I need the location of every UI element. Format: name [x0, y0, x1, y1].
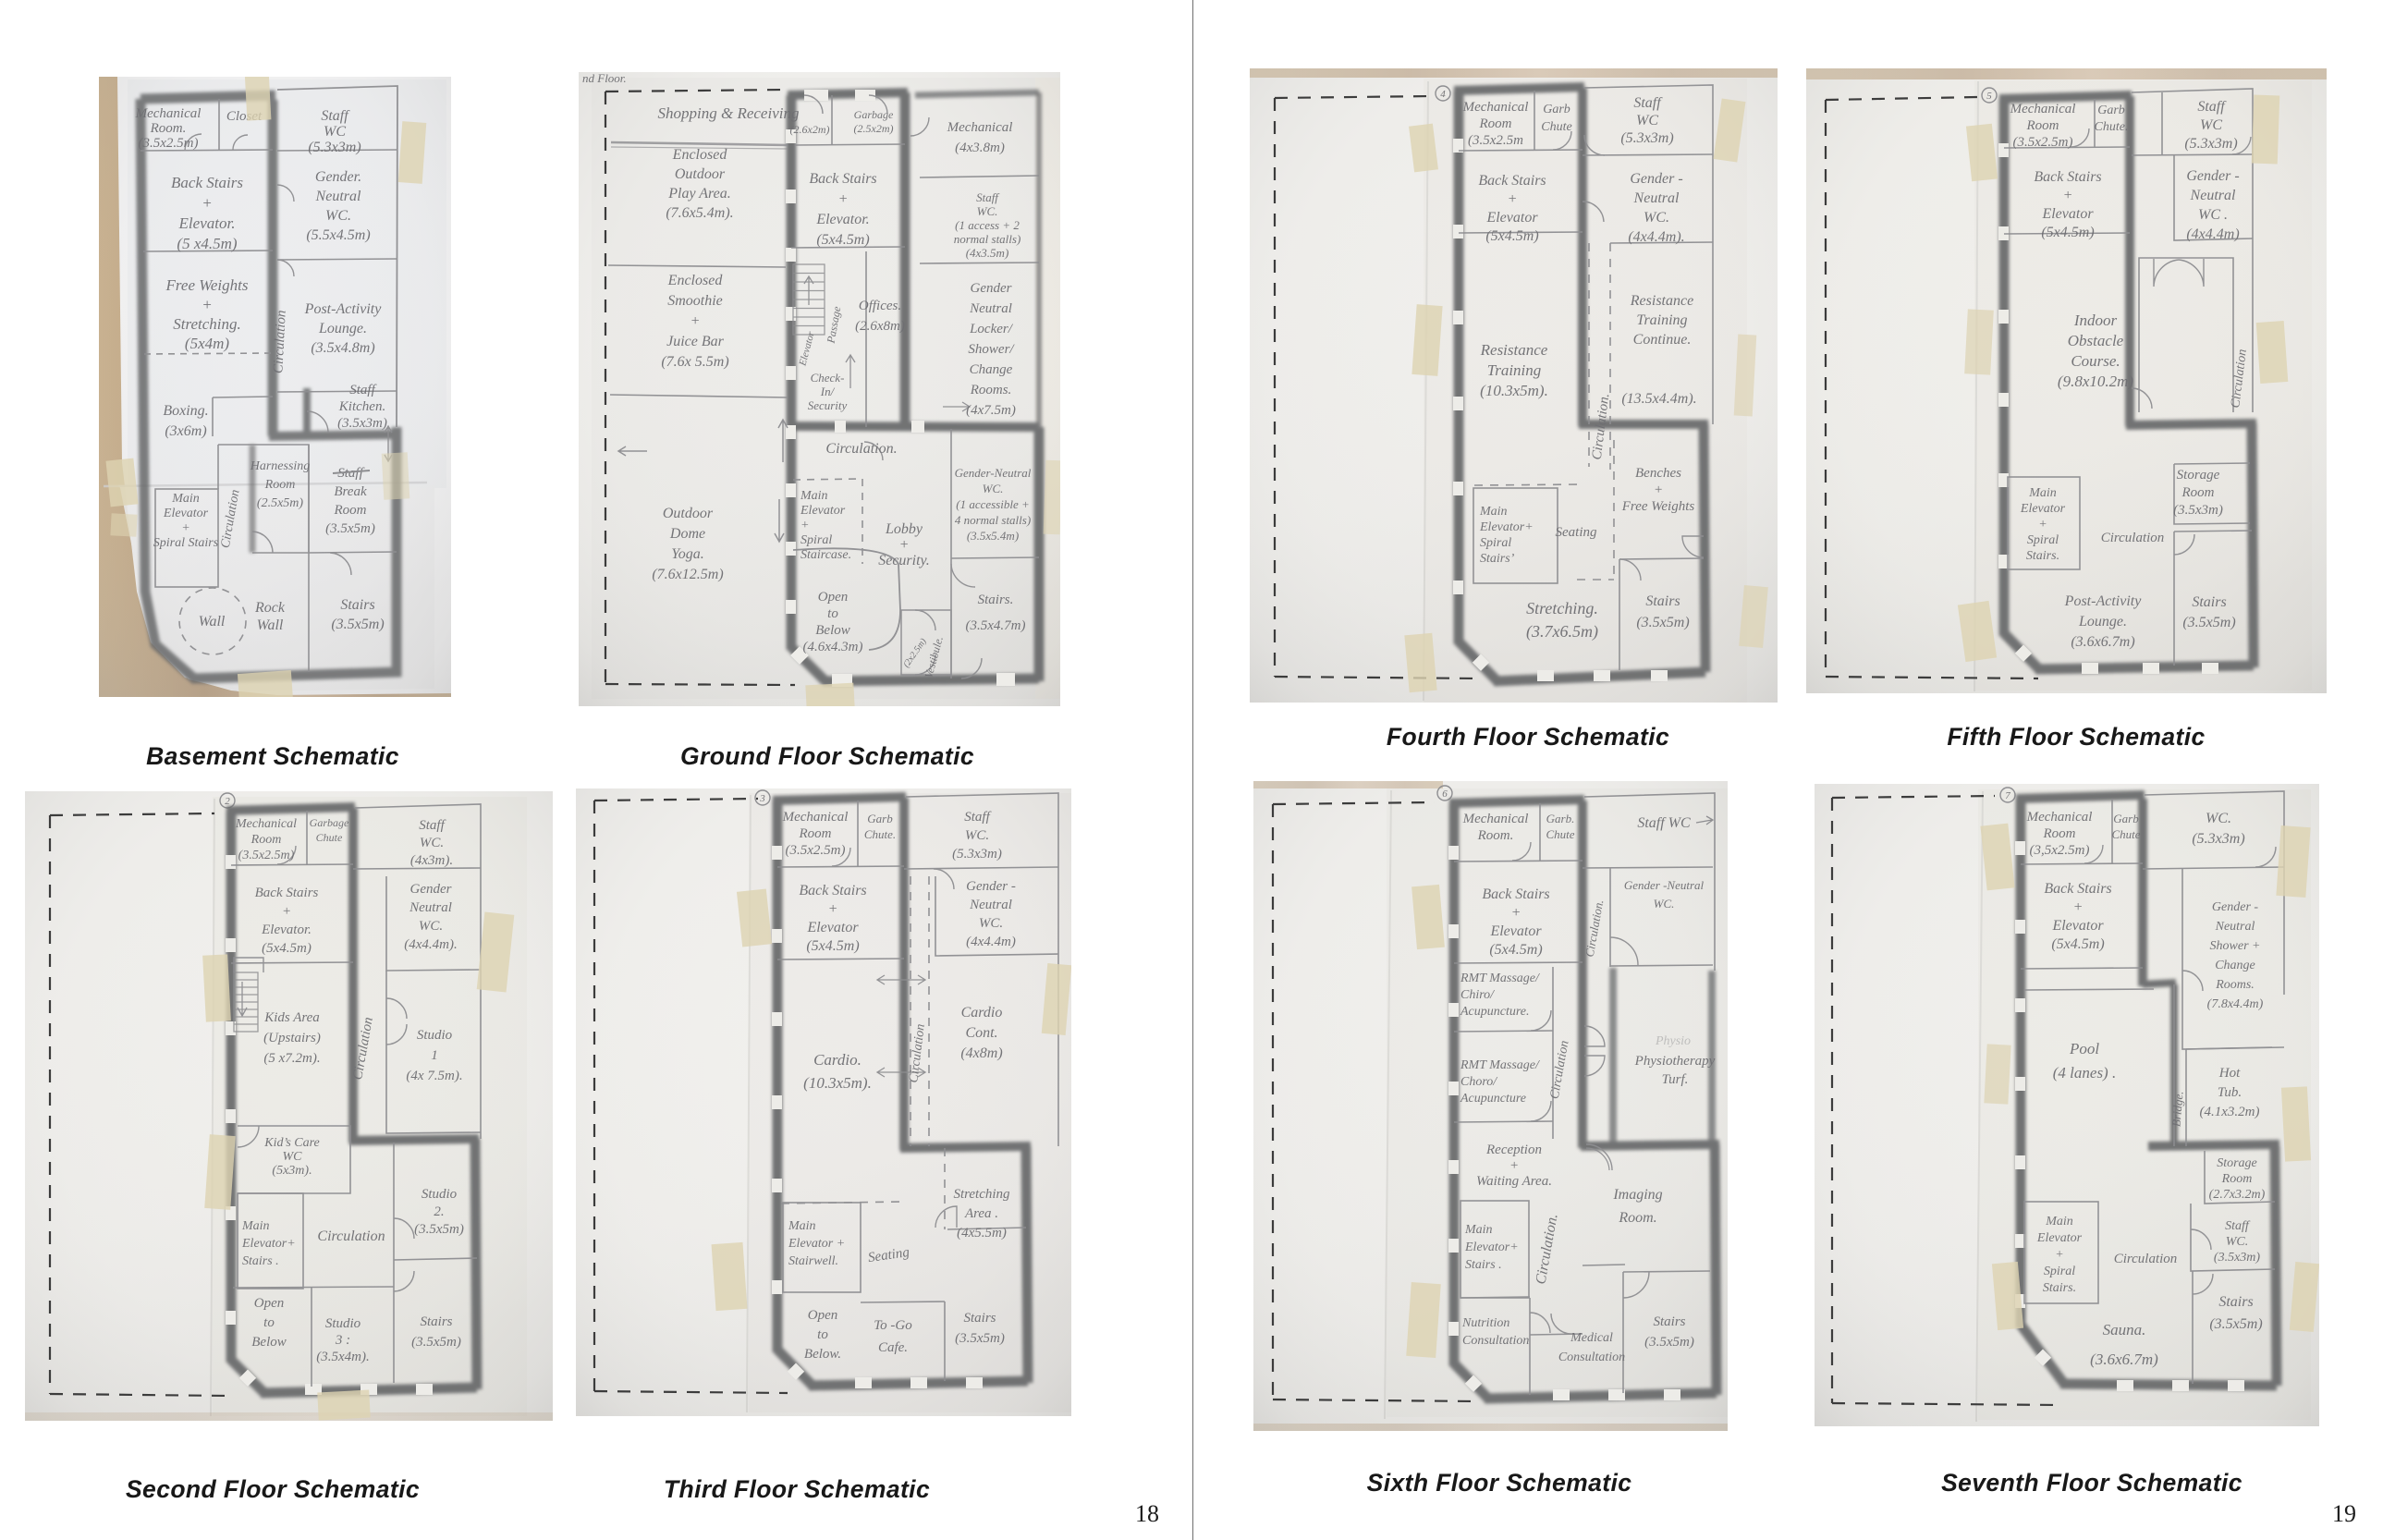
svg-text:(9.8x10.2m): (9.8x10.2m)	[2058, 373, 2133, 390]
svg-text:(5x4.5m): (5x4.5m)	[2051, 936, 2104, 952]
svg-text:Neutral: Neutral	[409, 900, 452, 915]
svg-text:Lounge.: Lounge.	[318, 321, 367, 336]
svg-text:Hot: Hot	[2218, 1066, 2241, 1081]
svg-text:Staff: Staff	[419, 818, 446, 833]
svg-text:Gender: Gender	[410, 882, 452, 897]
svg-text:5: 5	[1986, 91, 1992, 102]
svg-text:Elevator.: Elevator.	[261, 923, 312, 937]
svg-text:WC.: WC.	[420, 836, 444, 850]
svg-text:Course.: Course.	[2071, 352, 2120, 370]
svg-text:Gender -: Gender -	[966, 879, 1016, 894]
svg-text:Spiral Stairs: Spiral Stairs	[153, 536, 219, 550]
svg-text:Lobby: Lobby	[885, 521, 923, 537]
svg-text:Break: Break	[334, 484, 367, 499]
svg-text:(3.5x5m): (3.5x5m)	[414, 1222, 464, 1237]
svg-text:(3.5x5m): (3.5x5m)	[325, 521, 375, 536]
svg-text:WC: WC	[324, 124, 346, 140]
svg-text:(3.7x6.5m): (3.7x6.5m)	[1526, 622, 1598, 642]
svg-text:WC.: WC.	[2206, 811, 2231, 826]
svg-text:Staff: Staff	[976, 190, 1000, 204]
svg-text:(4x4.4m): (4x4.4m)	[966, 935, 1016, 949]
svg-text:(3x6m): (3x6m)	[165, 423, 206, 439]
svg-text:Stairs: Stairs	[2192, 594, 2226, 610]
svg-text:Locker/: Locker/	[969, 322, 1014, 336]
svg-text:Elevator+: Elevator+	[241, 1237, 296, 1251]
svg-text:(3.5x4.7m): (3.5x4.7m)	[966, 618, 1026, 633]
svg-text:Main: Main	[1464, 1223, 1493, 1237]
svg-text:(3.5x2.5m: (3.5x2.5m	[1468, 133, 1523, 148]
svg-text:Elevator.: Elevator.	[815, 212, 869, 227]
svg-text:Room: Room	[264, 478, 296, 492]
svg-text:Stairwell.: Stairwell.	[788, 1254, 838, 1268]
svg-text:Back Stairs: Back Stairs	[799, 883, 866, 898]
svg-text:Staff: Staff	[349, 383, 376, 397]
svg-text:(5x4m): (5x4m)	[185, 335, 229, 352]
svg-text:+: +	[2038, 518, 2047, 532]
svg-text:Cafe.: Cafe.	[878, 1340, 908, 1355]
svg-text:(5x4.5m): (5x4.5m)	[806, 938, 859, 954]
svg-text:(3.5x5m): (3.5x5m)	[411, 1335, 461, 1350]
svg-text:Elevator +: Elevator +	[788, 1237, 845, 1251]
svg-text:+: +	[1508, 191, 1518, 207]
svg-text:(7.6x 5.5m): (7.6x 5.5m)	[661, 354, 728, 370]
svg-text:Mechanical: Mechanical	[135, 106, 202, 121]
svg-text:Elevator: Elevator	[163, 507, 209, 520]
svg-text:Elevator: Elevator	[800, 504, 846, 518]
svg-text:Kid’s Care: Kid’s Care	[263, 1136, 320, 1150]
svg-text:To -Go: To -Go	[874, 1318, 912, 1333]
svg-text:Spiral: Spiral	[2027, 533, 2059, 547]
svg-text:(4x3m).: (4x3m).	[410, 853, 453, 868]
svg-text:Circulation.: Circulation.	[825, 441, 897, 457]
svg-text:3: 3	[759, 793, 765, 804]
svg-text:(5.3x3m): (5.3x3m)	[2192, 831, 2244, 847]
svg-text:6: 6	[1442, 788, 1448, 800]
svg-text:Kitchen.: Kitchen.	[338, 399, 385, 414]
svg-text:(3.5x5m): (3.5x5m)	[2209, 1316, 2262, 1332]
svg-text:(3,5x2.5m): (3,5x2.5m)	[2030, 843, 2090, 858]
svg-text:Staff: Staff	[964, 810, 991, 825]
svg-text:+: +	[2073, 899, 2084, 915]
svg-text:Consultation: Consultation	[1462, 1334, 1529, 1348]
svg-text:(2.5x2m): (2.5x2m)	[854, 122, 894, 135]
svg-text:(3.5x5m): (3.5x5m)	[1636, 615, 1689, 630]
svg-text:(4.6x4.3m): (4.6x4.3m)	[803, 640, 863, 654]
svg-text:Outdoor: Outdoor	[663, 506, 714, 521]
svg-text:(5.5x4.5m): (5.5x4.5m)	[306, 227, 370, 243]
svg-text:Dome: Dome	[669, 526, 705, 542]
svg-text:Circulation: Circulation	[2101, 531, 2165, 545]
svg-text:Room.: Room.	[1618, 1210, 1656, 1226]
svg-text:Continue.: Continue.	[1633, 332, 1692, 348]
svg-text:(3.5x2.5m): (3.5x2.5m)	[786, 843, 846, 858]
svg-text:Garbage: Garbage	[310, 816, 349, 829]
svg-text:Rooms.: Rooms.	[2215, 978, 2255, 992]
svg-text:Room.: Room.	[1477, 828, 1514, 843]
svg-text:Security.: Security.	[878, 553, 930, 568]
svg-text:+: +	[1654, 483, 1663, 497]
svg-text:Smoothie: Smoothie	[667, 293, 723, 309]
svg-text:Nutrition: Nutrition	[1461, 1316, 1509, 1330]
svg-text:Rock: Rock	[254, 600, 286, 616]
svg-text:Neutral: Neutral	[315, 189, 361, 204]
svg-text:Chute: Chute	[1546, 827, 1574, 841]
svg-text:(13.5x4.4m).: (13.5x4.4m).	[1621, 391, 1696, 407]
svg-text:Circulation: Circulation	[2114, 1252, 2178, 1266]
svg-text:Storage: Storage	[2217, 1156, 2257, 1170]
svg-text:Back Stairs: Back Stairs	[171, 174, 243, 191]
svg-text:Acupuncture.: Acupuncture.	[1460, 1005, 1530, 1019]
svg-text:Resistance: Resistance	[1480, 341, 1548, 359]
svg-text:(3.5x2.5m): (3.5x2.5m)	[238, 849, 295, 862]
svg-text:Resistance: Resistance	[1630, 293, 1693, 309]
svg-text:Wall: Wall	[199, 614, 226, 629]
svg-text:Staff WC: Staff WC	[1637, 815, 1691, 831]
svg-text:Stairs: Stairs	[420, 1314, 452, 1329]
svg-text:Enclosed: Enclosed	[672, 147, 728, 163]
svg-text:(7.8x4.4m): (7.8x4.4m)	[2207, 997, 2264, 1011]
svg-text:Training: Training	[1636, 312, 1687, 328]
svg-text:(1 accessible +: (1 accessible +	[956, 497, 1030, 511]
svg-text:(1 access + 2: (1 access + 2	[955, 218, 1020, 232]
svg-text:Check-: Check-	[811, 371, 845, 385]
svg-text:Stretching.: Stretching.	[173, 315, 241, 333]
svg-text:Play Area.: Play Area.	[667, 186, 731, 202]
svg-text:(4.1x3.2m): (4.1x3.2m)	[2200, 1105, 2260, 1119]
svg-text:Chute.: Chute.	[2095, 120, 2129, 134]
svg-text:Stairs’: Stairs’	[1480, 552, 1515, 566]
svg-text:Chiro/: Chiro/	[1460, 988, 1495, 1002]
svg-text:Mechanical: Mechanical	[2026, 810, 2093, 825]
svg-text:(2.5x5m): (2.5x5m)	[257, 496, 303, 510]
svg-text:Security: Security	[808, 398, 848, 412]
svg-text:(3.5x5.4m): (3.5x5.4m)	[967, 529, 1019, 543]
svg-text:Garb: Garb	[867, 812, 893, 825]
svg-text:Main: Main	[788, 1219, 816, 1233]
svg-text:Offices.: Offices.	[859, 299, 901, 313]
svg-text:(3.5x4m).: (3.5x4m).	[316, 1350, 369, 1364]
svg-text:Back Stairs: Back Stairs	[1478, 173, 1546, 189]
svg-text:(5x4.5m): (5x4.5m)	[1489, 942, 1542, 958]
svg-text:Shower +: Shower +	[2210, 939, 2261, 953]
svg-text:+: +	[202, 296, 212, 313]
svg-text:(3.5x3m): (3.5x3m)	[2214, 1251, 2260, 1265]
svg-text:Neutral: Neutral	[969, 301, 1012, 316]
svg-text:Shower/: Shower/	[968, 342, 1015, 357]
svg-text:(3.5x3m): (3.5x3m)	[2173, 503, 2223, 518]
svg-text:Stairs: Stairs	[1645, 593, 1680, 609]
svg-text:Studio: Studio	[422, 1187, 458, 1202]
svg-text:Studio: Studio	[417, 1028, 453, 1043]
svg-text:Room: Room	[2221, 1172, 2253, 1186]
svg-text:+: +	[181, 521, 189, 535]
svg-text:Stairs: Stairs	[340, 597, 374, 613]
svg-text:Back Stairs: Back Stairs	[1482, 886, 1549, 902]
svg-text:Gender -: Gender -	[1630, 171, 1682, 187]
svg-text:Elevator: Elevator	[806, 920, 859, 935]
svg-text:+: +	[690, 313, 701, 329]
svg-text:Room: Room	[2026, 118, 2059, 133]
svg-text:Open: Open	[808, 1308, 838, 1323]
svg-text:Elevator: Elevator	[2051, 918, 2104, 934]
svg-text:(3.6x6.7m): (3.6x6.7m)	[2090, 1351, 2158, 1368]
svg-text:Gender.: Gender.	[315, 169, 361, 185]
svg-text:In/: In/	[820, 385, 836, 398]
svg-text:Back Stairs: Back Stairs	[255, 886, 319, 900]
svg-text:(3.5x5m): (3.5x5m)	[955, 1331, 1005, 1346]
svg-text:Back Stairs: Back Stairs	[2034, 169, 2101, 185]
svg-text:Neutral: Neutral	[1633, 190, 1680, 206]
svg-text:Back Stairs: Back Stairs	[809, 171, 876, 187]
svg-text:Elevator.: Elevator.	[178, 214, 236, 232]
svg-text:(2.6x8m): (2.6x8m)	[855, 319, 905, 334]
svg-text:Gender -: Gender -	[2186, 168, 2239, 184]
svg-text:Area .: Area .	[964, 1206, 998, 1221]
svg-text:Pool: Pool	[2069, 1040, 2099, 1057]
svg-text:(3.5x5m): (3.5x5m)	[2182, 615, 2235, 630]
svg-text:Mechanical: Mechanical	[782, 810, 849, 825]
svg-text:(4x3.8m): (4x3.8m)	[955, 141, 1005, 155]
svg-text:+: +	[1511, 905, 1521, 921]
svg-text:(4 lanes) .: (4 lanes) .	[2053, 1064, 2116, 1082]
svg-text:WC.: WC.	[977, 204, 998, 218]
svg-text:(2.6x2m): (2.6x2m)	[790, 123, 830, 136]
svg-text:(10.3x5m).: (10.3x5m).	[1480, 382, 1548, 399]
svg-text:Elevator: Elevator	[2020, 502, 2066, 516]
svg-text:Stairs: Stairs	[963, 1311, 996, 1326]
svg-text:to: to	[263, 1315, 275, 1330]
svg-text:WC: WC	[283, 1150, 303, 1164]
svg-text:Free Weights: Free Weights	[1621, 499, 1695, 514]
svg-text:Circulation: Circulation	[317, 1228, 385, 1244]
svg-text:Medical: Medical	[1570, 1331, 1613, 1345]
svg-text:Post-Activity: Post-Activity	[304, 301, 383, 317]
svg-text:to: to	[817, 1327, 828, 1342]
svg-text:Main: Main	[2028, 486, 2057, 500]
svg-text:+: +	[282, 904, 291, 919]
svg-text:Spiral: Spiral	[800, 533, 832, 547]
svg-text:1: 1	[431, 1048, 438, 1063]
svg-text:Enclosed: Enclosed	[667, 273, 724, 288]
svg-text:Room.: Room.	[150, 121, 187, 136]
svg-text:(4x 7.5m).: (4x 7.5m).	[406, 1069, 462, 1083]
svg-text:Training: Training	[1487, 361, 1542, 379]
svg-text:Main: Main	[800, 489, 828, 503]
svg-text:Garb: Garb	[2097, 104, 2125, 117]
svg-text:Boxing.: Boxing.	[163, 403, 208, 419]
svg-text:Below.: Below.	[804, 1347, 841, 1362]
svg-text:(3.5x2.5m): (3.5x2.5m)	[2013, 135, 2073, 150]
svg-text:Garb: Garb	[2113, 812, 2139, 825]
svg-text:Indoor: Indoor	[2073, 312, 2118, 329]
svg-text:Rooms.: Rooms.	[970, 383, 1012, 397]
svg-text:to: to	[827, 606, 838, 621]
svg-text:Storage: Storage	[2177, 468, 2220, 483]
svg-text:WC: WC	[2200, 117, 2222, 133]
svg-text:Seating: Seating	[1556, 525, 1597, 540]
svg-text:Mechanical: Mechanical	[2010, 102, 2076, 116]
svg-text:Sauna.: Sauna.	[2103, 1321, 2146, 1338]
svg-text:(5x4.5m): (5x4.5m)	[2041, 225, 2094, 240]
svg-text:Cardio: Cardio	[961, 1005, 1003, 1021]
svg-text:Kids Area: Kids Area	[263, 1010, 320, 1025]
svg-text:WC.: WC.	[965, 828, 989, 843]
svg-text:Room: Room	[2043, 826, 2076, 841]
svg-text:2.: 2.	[434, 1204, 444, 1219]
svg-text:WC.: WC.	[979, 916, 1003, 931]
svg-text:Garb.: Garb.	[1546, 812, 1575, 825]
svg-text:(5.3x3m): (5.3x3m)	[952, 847, 1002, 862]
svg-text:Open: Open	[254, 1296, 285, 1311]
svg-text:Cardio.: Cardio.	[813, 1051, 862, 1069]
svg-text:Room: Room	[334, 503, 367, 518]
svg-text:Physio: Physio	[1655, 1034, 1691, 1048]
svg-text:Stairs.: Stairs.	[978, 593, 1014, 607]
svg-text:Back Stairs: Back Stairs	[2044, 881, 2111, 897]
svg-text:Stairs: Stairs	[2218, 1294, 2253, 1310]
svg-text:Shopping & Receiving: Shopping & Receiving	[658, 104, 800, 122]
svg-text:(4x8m): (4x8m)	[960, 1045, 1002, 1061]
svg-text:RMT Massage/: RMT Massage/	[1460, 972, 1540, 985]
svg-text:+: +	[838, 191, 849, 207]
svg-text:Benches: Benches	[1635, 466, 1681, 481]
svg-text:Mechanical: Mechanical	[947, 120, 1013, 135]
svg-text:Main: Main	[171, 492, 200, 506]
svg-text:WC.: WC.	[1644, 210, 1669, 226]
svg-text:Elevator: Elevator	[1485, 210, 1538, 226]
svg-text:Chute: Chute	[2111, 827, 2140, 841]
svg-text:(Upstairs): (Upstairs)	[263, 1031, 321, 1045]
svg-text:Neutral: Neutral	[2190, 188, 2236, 203]
svg-text:WC.: WC.	[2226, 1235, 2249, 1249]
svg-text:(3.5x5m): (3.5x5m)	[1644, 1335, 1694, 1350]
svg-text:Gender-Neutral: Gender-Neutral	[955, 466, 1032, 480]
svg-text:Stairs .: Stairs .	[242, 1254, 279, 1268]
svg-text:Wall: Wall	[257, 617, 284, 633]
svg-text:Tub.: Tub.	[2218, 1085, 2242, 1100]
svg-text:Free Weights: Free Weights	[165, 276, 249, 294]
svg-text:Staircase.: Staircase.	[800, 548, 851, 562]
svg-text:Mechanical: Mechanical	[1462, 812, 1529, 826]
svg-text:Mechanical: Mechanical	[1462, 100, 1529, 115]
svg-text:Studio: Studio	[325, 1316, 361, 1331]
svg-text:Neutral: Neutral	[2215, 920, 2255, 934]
svg-text:Below: Below	[815, 623, 850, 638]
svg-text:Room: Room	[799, 826, 832, 841]
svg-text:WC: WC	[1636, 113, 1658, 128]
svg-text:Imaging: Imaging	[1612, 1187, 1662, 1203]
svg-text:(7.6x12.5m): (7.6x12.5m)	[652, 567, 723, 582]
svg-text:Stairs.: Stairs.	[2026, 549, 2059, 563]
svg-text:Stretching.: Stretching.	[1526, 599, 1598, 617]
svg-text:nd Floor.: nd Floor.	[582, 72, 627, 85]
svg-text:Outdoor: Outdoor	[675, 166, 726, 182]
svg-text:Chute.: Chute.	[864, 827, 896, 841]
svg-text:Post-Activity: Post-Activity	[2064, 593, 2143, 609]
svg-text:(3.5x5m): (3.5x5m)	[331, 617, 384, 632]
svg-text:(10.3x5m).: (10.3x5m).	[803, 1074, 872, 1092]
svg-text:Reception: Reception	[1485, 1143, 1542, 1157]
svg-text:Elevator+: Elevator+	[1479, 520, 1534, 534]
svg-text:Stretching: Stretching	[953, 1187, 1010, 1202]
svg-text:3 :: 3 :	[335, 1333, 350, 1348]
svg-text:Staff: Staff	[2225, 1219, 2251, 1233]
svg-text:(2.7x3.2m): (2.7x3.2m)	[2209, 1188, 2266, 1202]
svg-text:(5 x4.5m): (5 x4.5m)	[177, 235, 237, 252]
svg-text:Juice Bar: Juice Bar	[666, 334, 725, 349]
svg-text:Physiotherapy: Physiotherapy	[1634, 1054, 1716, 1069]
svg-text:(7.6x5.4m).: (7.6x5.4m).	[666, 205, 733, 221]
svg-text:4: 4	[1440, 89, 1446, 100]
svg-text:4 normal stalls): 4 normal stalls)	[955, 513, 1031, 527]
svg-text:(5 x7.2m).: (5 x7.2m).	[263, 1051, 320, 1066]
svg-text:+: +	[2055, 1248, 2063, 1262]
svg-text:Cont.: Cont.	[965, 1025, 997, 1041]
svg-text:(5.3x3m): (5.3x3m)	[308, 140, 361, 155]
svg-text:+: +	[1509, 1158, 1519, 1173]
svg-text:WC.: WC.	[325, 208, 351, 224]
svg-text:+: +	[202, 194, 212, 212]
svg-text:2: 2	[225, 796, 230, 807]
svg-text:Room: Room	[2181, 485, 2215, 500]
svg-text:+: +	[2063, 188, 2073, 203]
svg-text:(3.6x6.7m): (3.6x6.7m)	[2071, 634, 2134, 650]
svg-text:WC.: WC.	[1654, 897, 1675, 911]
svg-text:Turf.: Turf.	[1662, 1072, 1689, 1087]
svg-text:+: +	[800, 519, 809, 532]
svg-text:(5.3x3m): (5.3x3m)	[2184, 136, 2237, 152]
svg-text:Chute: Chute	[316, 831, 343, 844]
svg-text:(3.5x3m): (3.5x3m)	[337, 416, 387, 431]
svg-text:Gender: Gender	[971, 281, 1012, 296]
svg-text:(5x4.5m): (5x4.5m)	[1485, 228, 1538, 244]
svg-text:Gender -: Gender -	[2212, 900, 2258, 914]
svg-text:Elevator: Elevator	[2036, 1231, 2083, 1245]
svg-text:Waiting Area.: Waiting Area.	[1476, 1174, 1552, 1189]
svg-text:Change: Change	[2215, 959, 2255, 972]
svg-text:Spiral: Spiral	[2044, 1265, 2075, 1278]
svg-text:Mechanical: Mechanical	[235, 817, 297, 831]
svg-text:normal stalls): normal stalls)	[954, 232, 1021, 246]
svg-text:WC .: WC .	[2198, 207, 2228, 223]
svg-text:Garb: Garb	[1543, 103, 1570, 116]
svg-text:7: 7	[2005, 790, 2010, 801]
svg-text:(4x4.4m).: (4x4.4m).	[1628, 229, 1684, 245]
svg-text:Spiral: Spiral	[1480, 536, 1511, 550]
svg-text:Elevator: Elevator	[1489, 923, 1542, 939]
svg-text:Staff: Staff	[321, 108, 350, 124]
svg-text:(5x4.5m): (5x4.5m)	[262, 941, 312, 956]
svg-text:Change: Change	[970, 362, 1013, 377]
svg-text:(4x7.5m): (4x7.5m)	[966, 403, 1016, 418]
svg-text:(4x4.4m).: (4x4.4m).	[404, 937, 457, 952]
svg-text:Stairs .: Stairs .	[1465, 1258, 1502, 1272]
svg-text:+: +	[828, 901, 838, 917]
svg-text:(4x3.5m): (4x3.5m)	[966, 246, 1009, 260]
svg-text:Harnessing: Harnessing	[250, 459, 311, 473]
svg-text:Stairs: Stairs	[1653, 1314, 1685, 1329]
svg-text:Obstacle: Obstacle	[2068, 332, 2124, 349]
svg-text:(4x4.4m): (4x4.4m)	[2186, 226, 2239, 242]
svg-text:Staff: Staff	[1633, 95, 1663, 111]
svg-text:(5x4.5m): (5x4.5m)	[816, 232, 869, 248]
svg-text:Garbage: Garbage	[854, 108, 894, 121]
svg-text:Chute: Chute	[1541, 120, 1571, 134]
svg-text:(4x5.5m): (4x5.5m)	[957, 1226, 1007, 1241]
svg-text:Open: Open	[818, 590, 849, 605]
svg-text:Below: Below	[251, 1335, 287, 1350]
svg-text:(3.5x4.8m): (3.5x4.8m)	[311, 340, 374, 356]
